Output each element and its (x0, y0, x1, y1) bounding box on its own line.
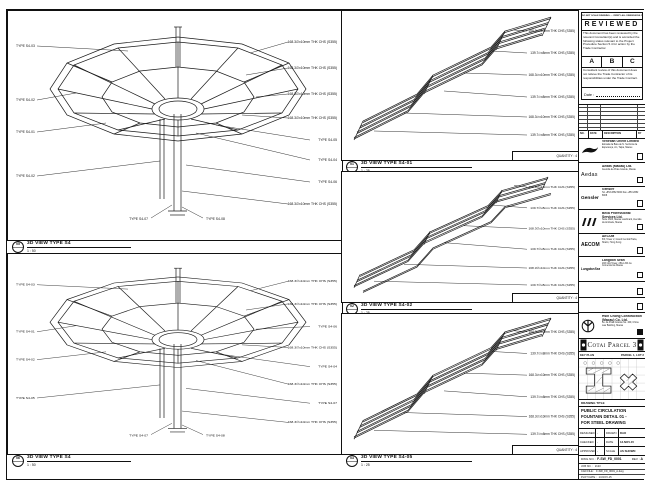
rev-col-by: BY (637, 131, 645, 138)
callout-number: 02 (350, 304, 354, 308)
approval-checkbox (637, 288, 644, 295)
company-row-blank-2 (579, 298, 645, 313)
stamp-header-note: DO NOT SCALE DRAWING — VERIFY ALL DIMENS… (582, 13, 642, 20)
company-details: Avenida da Praia Grande, Macau (602, 169, 643, 172)
aecom-logo: AECOM (581, 235, 600, 255)
member-tag-label: TYPE S4-04 (318, 158, 337, 162)
gensler-logo: Gensler (581, 188, 600, 208)
callout-number: 05 (16, 242, 20, 246)
plot-date-value: 13-NOV-15 (599, 476, 612, 479)
pipe-spec-label: 168.3∅x10mm THK CHS (S355) (288, 420, 337, 424)
member-tag-label: TYPE S4-06 (318, 180, 337, 184)
view-title-left-top: 05 3D VIEW TYPE S4 1 : 50 (12, 241, 131, 253)
pipe-member-drawing: 168.3∅x10mm THK CHS (S355) 139.7∅x8mm TH… (344, 174, 577, 300)
view-title: 3D VIEW TYPE S4 (27, 455, 131, 462)
company-details: 20/F AIA Tower, 251A-301 Av. Comercial d… (602, 263, 643, 268)
pipe-spec-label: 168.3∅x10mm THK CHS (S355) (288, 279, 337, 283)
cad-file-value: F-SW_FD_0001_A.dwg (596, 470, 623, 473)
rev-col-no: NO. (579, 131, 589, 138)
pipe-spec-label: 168.3∅x10mm THK CHS (S355) (529, 266, 575, 270)
pipe-spec-label: 168.3∅x10mm THK CHS (S355) (288, 92, 337, 96)
date-blank-line (596, 92, 640, 97)
member-tag-label: TYPE S4-03 (16, 283, 35, 287)
company-row-aedas: Aedas Aedas (Macau) Ltd. Avenida da Prai… (579, 163, 645, 187)
approval-checkbox-filled (637, 329, 644, 336)
info-row-checked: CHECKED - DATE 13-NOV-15 (579, 438, 645, 447)
scale-label: 1 : 50 (27, 248, 131, 253)
callout-number: 03 (350, 456, 354, 460)
pipe-spec-label: 168.3∅x10mm THK CHS (S355) (288, 116, 337, 120)
banner-ornament-icon (580, 339, 587, 351)
rev-col-date: DATE (589, 131, 603, 138)
info-value: - (596, 429, 605, 437)
revision-table: NO. DATE DESCRIPTION BY (579, 104, 645, 139)
view-panel-mid-1: 168.3∅x10mm THK CHS (S355) 139.7∅x8mm TH… (341, 10, 580, 161)
company-row-aecom: AECOM AECOM 8/F, Tower 2, Grand Central … (579, 234, 645, 258)
banner-ornament-icon (637, 339, 644, 351)
pipe-spec-label: 168.3∅x10mm THK CHS (S355) (529, 29, 575, 33)
review-stamp: DO NOT SCALE DRAWING — VERIFY ALL DIMENS… (581, 12, 643, 100)
info-key: DATE (605, 438, 619, 446)
view-panel-mid-3: 168.3∅x10mm THK CHS (S355) 139.7∅x8mm TH… (341, 313, 580, 455)
pipe-spec-label: 139.7∅x8mm THK CHS (S355) (530, 133, 575, 137)
rev-value: A (641, 457, 643, 461)
key-plan-plot-label: PARCEL 1, LOT 2 (621, 353, 644, 357)
approval-checkbox (637, 247, 644, 254)
pipe-spec-label: 139.7∅x8mm THK CHS (S355) (530, 95, 575, 99)
member-tag-label: TYPE S4-02 (16, 358, 35, 362)
approval-checkbox (637, 303, 644, 310)
key-plan-label: KEY PLAN (580, 353, 594, 357)
company-details: Tel +853 2882 8000 Fax +853 2882 8008 (602, 192, 643, 197)
cad-file-label: CAD FILE : (581, 470, 594, 473)
info-value: - (596, 438, 605, 446)
key-plan: KEY PLAN PARCEL 1, LOT 2 (579, 352, 645, 400)
view-title: 3D VIEW TYPE S4-01 (361, 161, 472, 168)
approval-checkbox (637, 272, 644, 279)
pipe-member-drawing: 168.3∅x10mm THK CHS (S355) 139.7∅x8mm TH… (344, 13, 577, 158)
pipe-spec-label: 168.3∅x10mm THK CHS (S355) (288, 40, 337, 44)
info-value: 13-NOV-15 (619, 438, 645, 446)
stamp-date-row: Date : (582, 88, 642, 99)
fountain-structure-drawing: TYPE S4-03 TYPE S4-01 TYPE S4-02 TYPE S4… (10, 256, 340, 452)
member-tag-label: TYPE S4-07 (318, 401, 337, 405)
info-key: APPROVED (579, 447, 596, 455)
pipe-spec-label: 168.3∅x10mm THK CHS (S355) (529, 227, 575, 231)
view-title-left-bottom: 06 3D VIEW TYPE S4 1 : 50 (12, 455, 131, 467)
company-row-blank-1 (579, 282, 645, 298)
view-title-mid-3: 03 3D VIEW TYPE S4-05 1 : 25 (346, 455, 472, 467)
pipe-spec-label: 168.3∅x10mm THK CHS (S355) (529, 115, 575, 119)
detail-callout-bubble: 06 (12, 455, 24, 467)
grade-cell-c: C (623, 57, 642, 67)
company-row-gensler: Gensler Gensler Tel +853 2882 8000 Fax +… (579, 187, 645, 211)
langdon-seah-logo: LangdonSeah (581, 259, 600, 279)
company-row-beca: Beca Professional Services Ltd. Suite 16… (579, 210, 645, 234)
venetian-swoosh-logo-icon (581, 140, 600, 160)
pipe-spec-label: 168.3∅x10mm THK CHS (S355) (288, 302, 337, 306)
dwg-number-row: DWG NO. : F-SW_FD_0001 REV : A (579, 456, 645, 464)
scale-label: 1 : 25 (361, 462, 472, 467)
info-key: CHECKED (579, 438, 596, 446)
job-no-label: JOB NO. : (581, 465, 593, 468)
member-tag-label: TYPE S4-01 (16, 130, 35, 134)
grade-cell-b: B (602, 57, 622, 67)
dwg-no-value: F-SW_FD_0001 (597, 457, 622, 461)
member-tag-label: TYPE S4-01 (16, 330, 35, 334)
member-tag-label: TYPE S4-06 (318, 325, 337, 329)
revision-table-header: NO. DATE DESCRIPTION BY (579, 130, 645, 138)
pipe-spec-label: 168.3∅x10mm THK CHS (S355) (288, 346, 337, 350)
quantity-label: QUANTITY : 4 (512, 151, 579, 160)
drawing-title-text: PUBLIC CIRCULATION FOUNTAIN DETAIL 01 - … (579, 407, 645, 429)
view-title: 3D VIEW TYPE S4-05 (361, 455, 472, 462)
member-tag-label: TYPE S4-04 (318, 365, 337, 369)
view-panel-left-top: TYPE S4-03 TYPE S4-02 TYPE S4-01 TYPE S4… (7, 10, 343, 241)
pipe-spec-label: 168.3∅x10mm THK CHS (S355) (529, 415, 575, 419)
detail-callout-bubble: 05 (12, 241, 24, 253)
company-row-hsin-chong: Hsin Chong Construction (Macau) Co. Ltd.… (579, 313, 645, 338)
pipe-spec-label: 139.7∅x8mm THK CHS (S355) (530, 432, 575, 436)
pipe-spec-label: 139.7∅x8mm THK CHS (S355) (530, 351, 575, 355)
detail-callout-bubble: 03 (346, 455, 358, 467)
pipe-spec-label: 139.7∅x8mm THK CHS (S355) (530, 51, 575, 55)
plot-date-label: PLOT DATE : (581, 476, 597, 479)
member-tag-label: TYPE S4-03 (16, 44, 35, 48)
scale-label: 1 : 50 (27, 462, 131, 467)
plot-date-row: PLOT DATE : 13-NOV-15 (579, 475, 645, 479)
stamp-body-text: This document has been reviewed by the r… (582, 31, 642, 57)
dwg-no-label: DWG NO. : (581, 457, 596, 461)
job-no-value: 2123 (595, 465, 601, 468)
fountain-structure-drawing: TYPE S4-03 TYPE S4-02 TYPE S4-01 TYPE S4… (10, 13, 340, 238)
reviewed-stamp-title: REVIEWED (582, 20, 642, 31)
company-row-venetian: Venetian Orient Limited Estrada da Baía … (579, 139, 645, 163)
view-title: 3D VIEW TYPE S4-02 (361, 303, 472, 310)
view-panel-mid-2: 168.3∅x10mm THK CHS (S355) 139.7∅x8mm TH… (341, 171, 580, 303)
view-title: 3D VIEW TYPE S4 (27, 241, 131, 248)
pipe-spec-label: 139.7∅x8mm THK CHS (S355) (530, 395, 575, 399)
member-tag-label: TYPE S4-05 (16, 396, 35, 400)
date-label: Date : (584, 93, 594, 97)
approval-checkbox (637, 153, 644, 160)
info-key: SCALE (605, 447, 619, 455)
pipe-spec-label: 139.7∅x8mm THK CHS (S355) (530, 206, 575, 210)
company-details: Estrada da Baía de N. Senhora da Esperan… (602, 144, 643, 149)
view-panel-left-bottom: TYPE S4-03 TYPE S4-01 TYPE S4-02 TYPE S4… (7, 253, 343, 455)
pipe-spec-label: 168.3∅x10mm THK CHS (S355) (288, 382, 337, 386)
member-tag-label: TYPE S4-02 (16, 174, 35, 178)
grade-cell-a: A (582, 57, 602, 67)
info-row-approved: APPROVED - SCALE AS SHOWN (579, 447, 645, 456)
pipe-member-drawing: 168.3∅x10mm THK CHS (S355) 139.7∅x8mm TH… (344, 316, 577, 452)
hsin-chong-logo-icon (581, 315, 600, 336)
info-key: DESIGNED (579, 429, 596, 437)
callout-number: 06 (16, 456, 20, 460)
info-key: DRAWN (605, 429, 619, 437)
pipe-spec-label: 168.3∅x10mm THK CHS (S355) (529, 330, 575, 334)
info-row-designed: DESIGNED - DRAWN DAO (579, 429, 645, 438)
company-row-langdon-seah: LangdonSeah Langdon Seah 20/F AIA Tower,… (579, 257, 645, 281)
stamp-disclaimer-text: Consultant review of this document does … (582, 68, 642, 88)
drawing-title-line-3: FOR STEEL DRAWING (581, 420, 643, 426)
drawing-title-header: DRAWING TITLE (579, 400, 645, 407)
member-tag-label: TYPE S4-07 (129, 217, 148, 221)
aedas-logo: Aedas (581, 165, 600, 185)
pipe-spec-label: 168.3∅x10mm THK CHS (S355) (288, 202, 337, 206)
pipe-spec-label: 168.3∅x10mm THK CHS (S355) (529, 185, 575, 189)
approval-checkbox (637, 200, 644, 207)
member-tag-label: TYPE S4-05 (318, 138, 337, 142)
review-grade-row: A B C (582, 57, 642, 68)
member-tag-label: TYPE S4-08 (206, 217, 225, 221)
project-name: Cotai Parcel 3 (587, 341, 636, 349)
pipe-spec-label: 168.3∅x10mm THK CHS (S355) (288, 66, 337, 70)
rev-col-description: DESCRIPTION (603, 131, 637, 138)
member-tag-label: TYPE S4-02 (16, 98, 35, 102)
info-value: AS SHOWN (619, 447, 645, 455)
beca-triple-stroke-logo-icon (581, 212, 600, 232)
title-block: DO NOT SCALE DRAWING — VERIFY ALL DIMENS… (578, 10, 645, 479)
company-details: 8/F, Tower 2, Grand Central Plaza, Shati… (602, 239, 643, 244)
key-plan-map (579, 359, 645, 399)
member-tag-label: TYPE S4-07 (129, 434, 148, 438)
callout-number: 01 (350, 162, 354, 166)
approval-checkbox (637, 224, 644, 231)
info-value: DAO (619, 429, 645, 437)
project-banner: Cotai Parcel 3 (579, 339, 645, 352)
pipe-spec-label: 139.7∅x8mm THK CHS (S355) (530, 283, 575, 287)
drawing-sheet: TYPE S4-03 TYPE S4-02 TYPE S4-01 TYPE S4… (0, 0, 650, 488)
approval-checkbox (637, 177, 644, 184)
pipe-spec-label: 168.3∅x10mm THK CHS (S355) (529, 73, 575, 77)
quantity-label: QUANTITY : 4 (512, 293, 579, 302)
pipe-spec-label: 139.7∅x8mm THK CHS (S355) (530, 247, 575, 251)
company-details: Av. da Praia Grande No. 409, China Law B… (602, 322, 643, 327)
info-value: - (596, 447, 605, 455)
member-tag-label: TYPE S4-08 (206, 434, 225, 438)
quantity-label: QUANTITY : 4 (512, 445, 579, 454)
rev-label: REV : (632, 457, 640, 461)
pipe-spec-label: 168.3∅x10mm THK CHS (S355) (529, 373, 575, 377)
